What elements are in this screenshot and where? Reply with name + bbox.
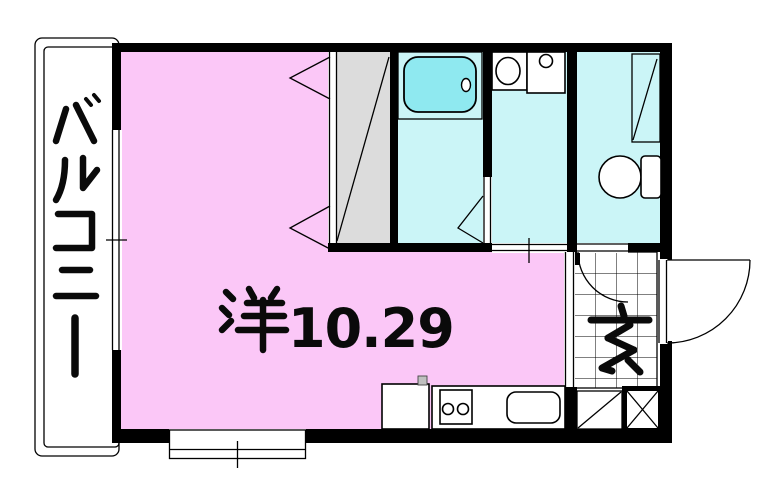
stove-burner-right: [458, 404, 469, 415]
glyph-ba: [56, 95, 99, 141]
refrigerator-space: [382, 376, 429, 429]
bathtub-drain: [462, 79, 471, 92]
shoe-storage: [577, 391, 622, 429]
entrance-door-swing-arc: [667, 260, 750, 343]
kitchen-sink: [507, 392, 560, 423]
kitchen-counter: [432, 386, 565, 429]
washbasin: [492, 52, 527, 90]
entrance-door: [658, 259, 750, 344]
bottom-window: [169, 429, 306, 468]
genkan-room-doorway: [564, 252, 575, 387]
refrigerator-handle: [418, 376, 427, 385]
washing-machine-pan: [527, 52, 565, 93]
pipe-space: [622, 386, 663, 433]
bathtub: [398, 52, 482, 119]
toilet-room-floor: [577, 52, 660, 244]
floor-plan-drawing: バルコニー 洋10.29 玄 10.29: [0, 0, 759, 495]
floor-plan: バルコニー 洋10.29 玄 10.29: [0, 0, 759, 495]
glyph-ru: [56, 158, 97, 200]
toilet: [599, 156, 661, 198]
glyph-ni: [56, 270, 96, 296]
stove-burner-left: [443, 404, 454, 415]
room-size-text: 10.29: [288, 297, 454, 360]
